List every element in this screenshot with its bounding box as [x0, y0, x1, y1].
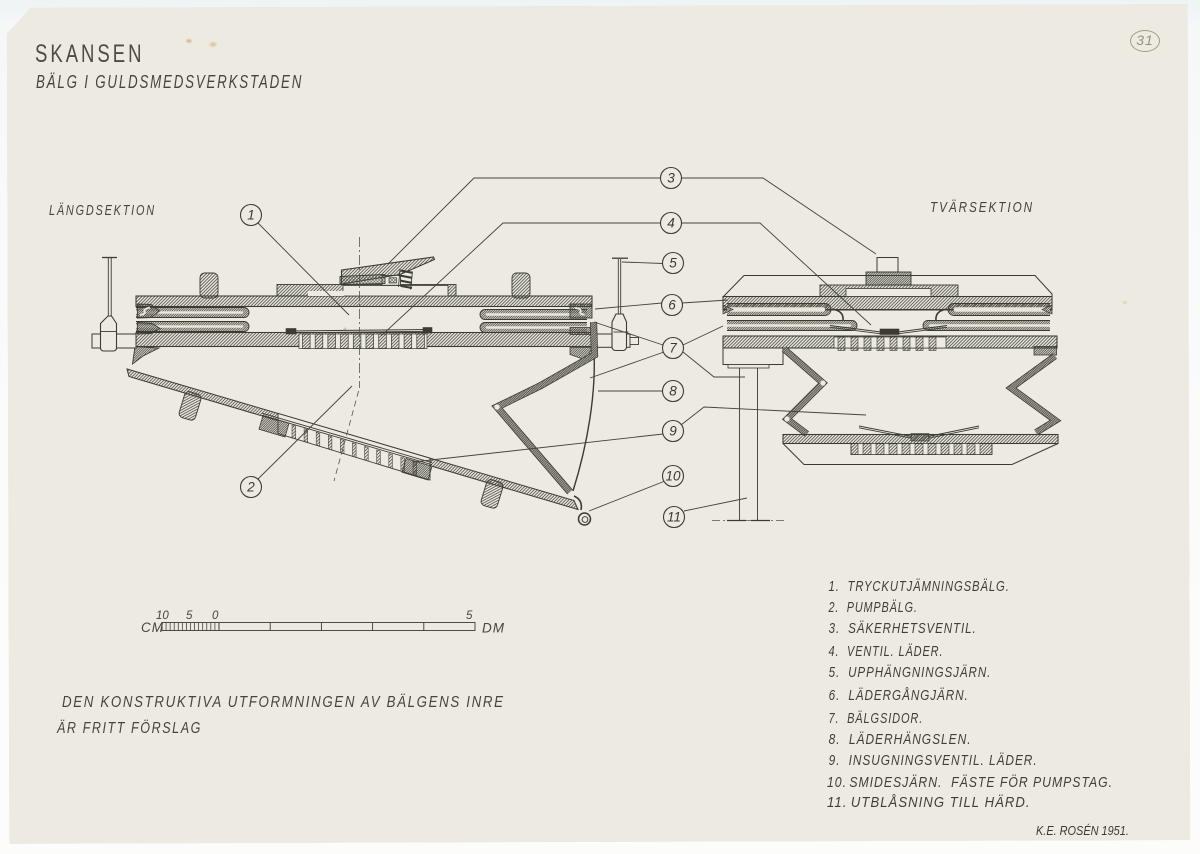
- svg-text:9: 9: [669, 424, 677, 439]
- svg-text:CM: CM: [141, 620, 164, 635]
- svg-text:6: 6: [668, 298, 676, 313]
- svg-text:11: 11: [667, 510, 681, 525]
- svg-text:5: 5: [186, 610, 193, 622]
- svg-text:1: 1: [247, 208, 255, 223]
- svg-text:3: 3: [667, 171, 675, 186]
- svg-text:4: 4: [667, 216, 675, 231]
- svg-text:7: 7: [669, 341, 677, 356]
- svg-text:0: 0: [212, 610, 219, 622]
- svg-text:10: 10: [156, 610, 169, 622]
- svg-text:5: 5: [669, 256, 677, 271]
- svg-text:2: 2: [246, 480, 255, 495]
- svg-text:DM: DM: [482, 621, 505, 636]
- svg-text:8: 8: [669, 384, 677, 399]
- svg-text:10: 10: [665, 469, 681, 484]
- svg-text:5: 5: [466, 610, 473, 622]
